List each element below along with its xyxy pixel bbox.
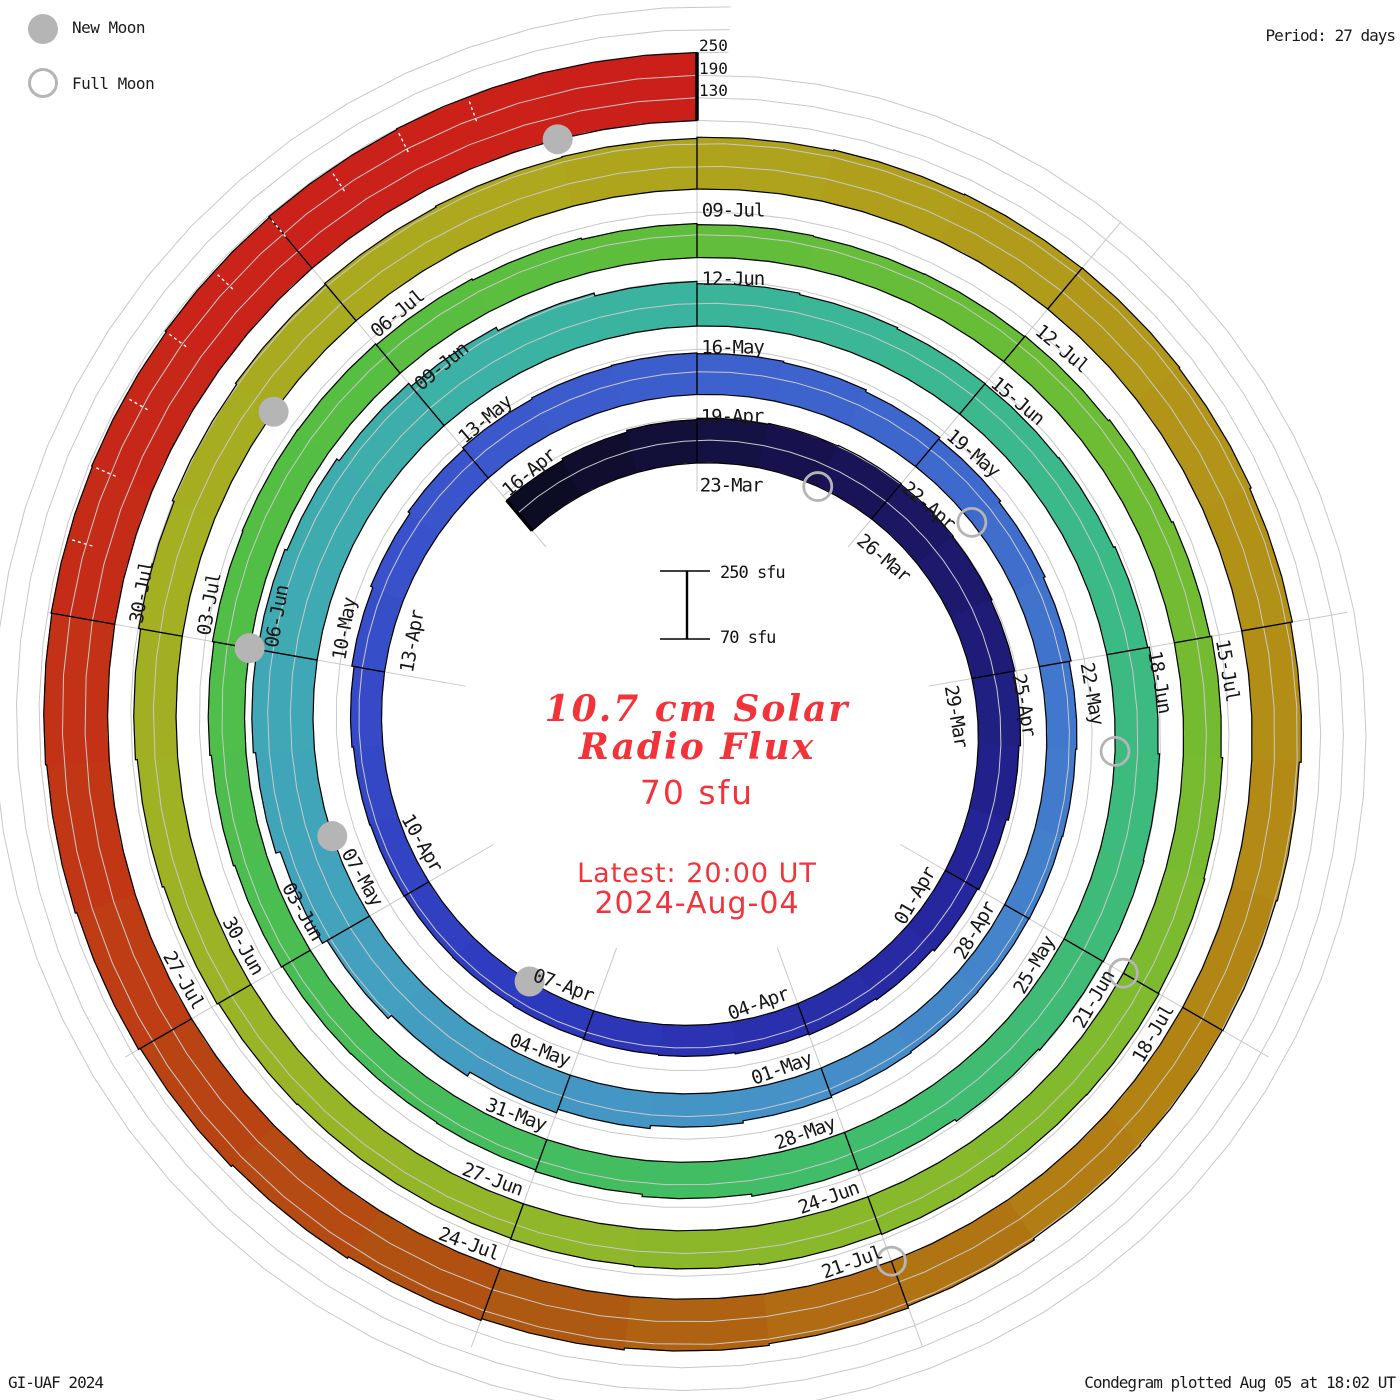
scale-bottom-label: 70 sfu bbox=[720, 628, 775, 648]
scale-top-label: 250 sfu bbox=[720, 563, 785, 583]
spiral-date-label: 09-Jul bbox=[702, 199, 765, 221]
new-moon-icon bbox=[28, 14, 58, 44]
new-moon-marker bbox=[235, 633, 265, 663]
new-moon-label: New Moon bbox=[72, 18, 145, 37]
spiral-date-label: 23-Mar bbox=[700, 475, 763, 497]
new-moon-marker bbox=[317, 821, 347, 851]
chart-title-line2: Radio Flux bbox=[579, 726, 815, 768]
spiral-date-label: 13-Apr bbox=[396, 608, 429, 674]
spiral-date-label: 29-Mar bbox=[940, 684, 973, 750]
plotted-timestamp: Condegram plotted Aug 05 at 18:02 UT bbox=[1084, 1373, 1395, 1392]
spiral-date-label: 19-Apr bbox=[701, 406, 764, 428]
full-moon-icon bbox=[28, 68, 58, 98]
scale-bar bbox=[660, 571, 710, 639]
outer-scale-250: 250 bbox=[699, 36, 728, 55]
latest-time-label: Latest: 20:00 UT bbox=[577, 858, 817, 889]
spiral-date-label: 22-May bbox=[1076, 661, 1109, 727]
period-label: Period: 27 days bbox=[1266, 26, 1396, 45]
new-moon-marker bbox=[259, 397, 289, 427]
new-moon-marker bbox=[543, 124, 573, 154]
outer-scale-190: 190 bbox=[699, 59, 728, 78]
condegram-page: 23-Mar26-Mar29-Mar01-Apr04-Apr07-Apr10-A… bbox=[0, 0, 1400, 1400]
chart-title-line1: 10.7 cm Solar bbox=[545, 688, 850, 730]
spiral-date-label: 12-Jun bbox=[702, 268, 765, 290]
latest-date-label: 2024-Aug-04 bbox=[594, 886, 799, 921]
credit-label: GI-UAF 2024 bbox=[8, 1373, 103, 1392]
current-flux-value: 70 sfu bbox=[640, 773, 754, 812]
full-moon-label: Full Moon bbox=[72, 74, 154, 93]
spiral-date-label: 16-May bbox=[701, 337, 764, 359]
outer-scale-130: 130 bbox=[699, 81, 728, 100]
